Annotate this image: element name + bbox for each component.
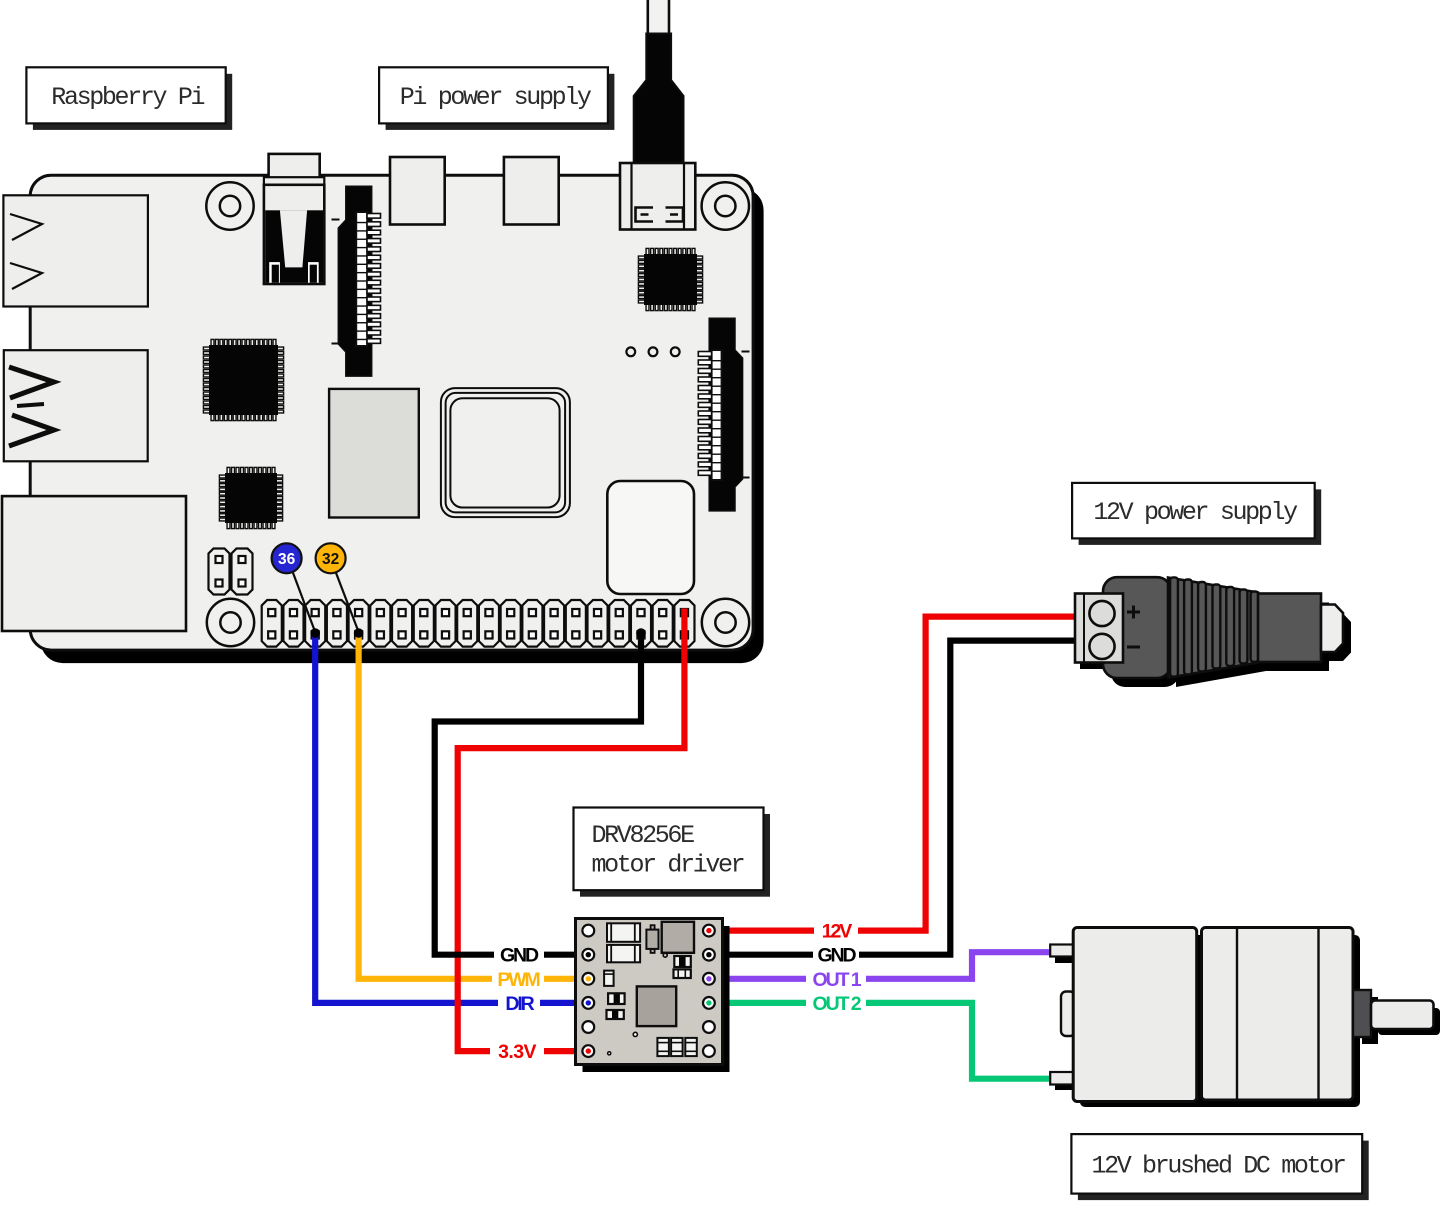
svg-text:DIR: DIR: [505, 993, 534, 1015]
svg-text:PWM: PWM: [497, 969, 539, 991]
svg-text:3.3V: 3.3V: [498, 1041, 536, 1063]
svg-text:GND: GND: [500, 945, 539, 967]
svg-text:12V: 12V: [822, 921, 852, 943]
svg-text:12V brushed DC motor: 12V brushed DC motor: [1091, 1151, 1344, 1180]
svg-text:36: 36: [278, 551, 296, 568]
svg-text:32: 32: [322, 551, 339, 568]
svg-text:Pi power supply: Pi power supply: [400, 83, 592, 112]
svg-text:12V power supply: 12V power supply: [1093, 498, 1298, 527]
svg-text:DRV8256E: DRV8256E: [592, 821, 695, 850]
svg-text:motor driver: motor driver: [592, 851, 744, 880]
svg-text:OUT 1: OUT 1: [813, 969, 862, 991]
svg-text:OUT 2: OUT 2: [813, 993, 862, 1015]
svg-text:Raspberry Pi: Raspberry Pi: [51, 83, 204, 112]
svg-text:GND: GND: [817, 945, 856, 967]
